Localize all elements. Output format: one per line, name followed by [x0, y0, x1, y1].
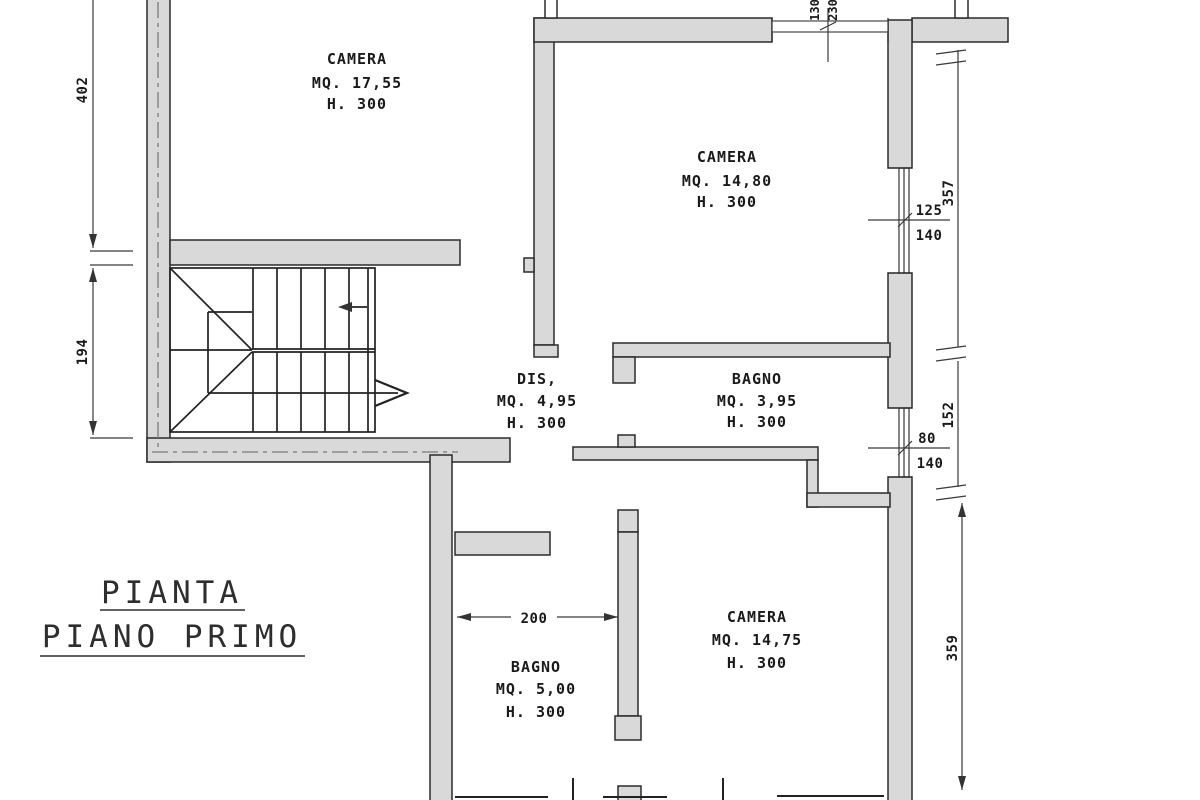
wall-bagno2-south	[573, 447, 818, 460]
room-area: MQ. 17,55	[312, 74, 402, 92]
dim-label-200: 200	[521, 611, 548, 627]
wall-lower-left	[430, 455, 452, 800]
plan-title-line1: PIANTA	[101, 575, 243, 611]
wall-partition-cap	[615, 716, 641, 740]
wall-right-lower	[888, 477, 912, 800]
wall-right-middle	[888, 273, 912, 408]
stair-up-arrow-large	[208, 380, 407, 406]
dim-label-130: 130	[808, 0, 822, 21]
room-name: CAMERA	[327, 50, 387, 68]
wall-bagno2-pier-down	[613, 357, 635, 383]
wall-camera3-north	[807, 493, 890, 507]
stair-winder-diagonal-2	[170, 352, 252, 432]
dimension-200: 200	[457, 611, 618, 627]
dim-label-359: 359	[945, 635, 961, 662]
wall-partition	[618, 532, 638, 716]
wall-bagno2-pier-up	[618, 435, 635, 447]
room-label-bagno-500: BAGNO MQ. 5,00 H. 300	[496, 658, 576, 721]
room-name: BAGNO	[511, 658, 561, 676]
dim-label-194: 194	[75, 339, 91, 366]
wall-partition-pier	[618, 510, 638, 532]
room-label-camera-1480: CAMERA MQ. 14,80 H. 300	[682, 148, 772, 211]
room-label-camera-1475: CAMERA MQ. 14,75 H. 300	[712, 608, 802, 672]
dim-label-80: 80	[918, 431, 936, 447]
room-height: H. 300	[727, 413, 787, 431]
floor-plan-drawing: 402 194 357 152	[0, 0, 1200, 800]
wall-right-upper	[888, 20, 912, 168]
stair-winder-diagonal-1	[170, 268, 252, 350]
room-height: H. 300	[697, 193, 757, 211]
title-block: PIANTA PIANO PRIMO	[40, 575, 305, 656]
dim-label-230: 230	[826, 0, 840, 21]
dimension-359: 359	[945, 503, 966, 790]
wall-top-right	[912, 18, 1008, 42]
wall-stair-north	[170, 240, 460, 265]
room-name: CAMERA	[727, 608, 787, 626]
floor-plan: 402 194 357 152	[0, 0, 1200, 800]
room-name: BAGNO	[732, 370, 782, 388]
room-height: H. 300	[507, 414, 567, 432]
room-label-dis: DIS, MQ. 4,95 H. 300	[497, 370, 577, 432]
window-top-opening	[772, 20, 888, 33]
room-name: DIS,	[517, 370, 557, 388]
stair-up-arrow-small	[338, 302, 367, 312]
room-name: CAMERA	[697, 148, 757, 166]
wall-stair-south	[147, 438, 510, 462]
room-area: MQ. 3,95	[717, 392, 797, 410]
dim-label-125: 125	[916, 203, 943, 219]
plan-title-line2: PIANO PRIMO	[42, 619, 302, 655]
dimension-402: 402	[75, 0, 133, 251]
wall-camera1-right-foot	[534, 345, 558, 357]
room-area: MQ. 5,00	[496, 680, 576, 698]
room-area: MQ. 4,95	[497, 392, 577, 410]
dim-label-152: 152	[941, 402, 957, 429]
room-label-bagno-395: BAGNO MQ. 3,95 H. 300	[717, 370, 797, 431]
room-area: MQ. 14,75	[712, 631, 802, 649]
wall-centerlines	[152, 2, 458, 452]
room-area: MQ. 14,80	[682, 172, 772, 190]
room-label-camera-1755: CAMERA MQ. 17,55 H. 300	[312, 50, 402, 113]
dim-label-357: 357	[941, 180, 957, 207]
room-height: H. 300	[506, 703, 566, 721]
duct-top-left	[545, 0, 557, 18]
room-height: H. 300	[327, 95, 387, 113]
dimension-194: 194	[75, 265, 133, 438]
wall-bagno2-north	[613, 343, 890, 357]
duct-top-right	[955, 0, 968, 18]
dim-label-140b: 140	[917, 456, 944, 472]
room-height: H. 300	[727, 654, 787, 672]
dim-label-140a: 140	[916, 228, 943, 244]
bottom-edge-walls	[455, 778, 884, 800]
wall-camera1-right	[534, 18, 554, 345]
room-labels: CAMERA MQ. 17,55 H. 300 CAMERA MQ. 14,80…	[312, 50, 802, 721]
dimension-152: 152	[936, 361, 966, 500]
staircase	[170, 268, 407, 432]
dim-label-402: 402	[75, 77, 91, 104]
wall-camera1-pier	[524, 258, 534, 272]
wall-bagno1-north	[455, 532, 550, 555]
wall-top	[534, 18, 772, 42]
